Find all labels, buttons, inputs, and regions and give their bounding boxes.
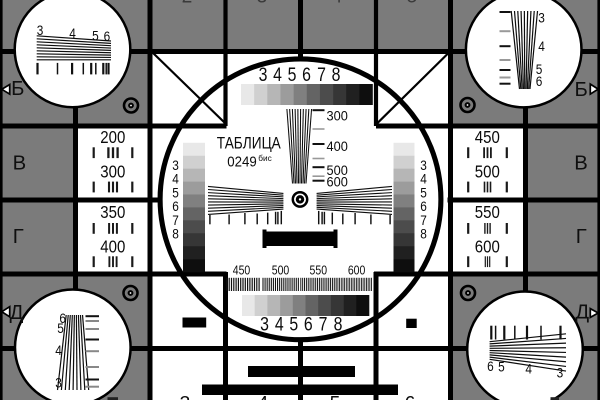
svg-text:7: 7 bbox=[319, 315, 328, 336]
svg-text:4: 4 bbox=[55, 343, 62, 358]
svg-text:400: 400 bbox=[327, 139, 348, 155]
svg-text:8: 8 bbox=[334, 315, 343, 336]
svg-text:3: 3 bbox=[260, 315, 269, 336]
svg-text:4: 4 bbox=[275, 315, 284, 336]
svg-text:500: 500 bbox=[475, 161, 500, 181]
svg-text:5: 5 bbox=[498, 360, 505, 375]
svg-text:5: 5 bbox=[288, 65, 297, 86]
svg-text:Б: Б bbox=[575, 79, 588, 101]
svg-text:4: 4 bbox=[69, 26, 76, 41]
svg-text:450: 450 bbox=[475, 127, 500, 147]
svg-text:4: 4 bbox=[538, 39, 545, 54]
svg-text:3: 3 bbox=[37, 23, 44, 38]
svg-text:350: 350 bbox=[100, 202, 125, 222]
svg-text:5: 5 bbox=[289, 315, 298, 336]
svg-text:600: 600 bbox=[327, 175, 348, 191]
svg-text:3: 3 bbox=[557, 366, 564, 381]
svg-text:7: 7 bbox=[317, 65, 326, 86]
svg-text:6: 6 bbox=[536, 74, 543, 89]
svg-text:3: 3 bbox=[55, 376, 62, 391]
svg-text:4: 4 bbox=[525, 362, 532, 377]
svg-text:Б: Б bbox=[11, 78, 24, 100]
svg-text:5: 5 bbox=[330, 394, 341, 400]
svg-text:4: 4 bbox=[273, 65, 282, 86]
svg-text:3: 3 bbox=[538, 11, 545, 26]
svg-text:В: В bbox=[574, 153, 588, 175]
svg-text:600: 600 bbox=[475, 236, 500, 256]
svg-text:600: 600 bbox=[348, 263, 366, 277]
svg-text:8: 8 bbox=[172, 227, 179, 242]
svg-text:500: 500 bbox=[272, 263, 290, 277]
svg-text:550: 550 bbox=[310, 263, 328, 277]
svg-text:200: 200 bbox=[100, 127, 125, 147]
svg-text:3: 3 bbox=[257, 0, 268, 8]
svg-text:4: 4 bbox=[172, 172, 179, 187]
svg-text:0249: 0249 bbox=[227, 155, 256, 171]
svg-text:4: 4 bbox=[420, 172, 427, 187]
svg-text:300: 300 bbox=[100, 161, 125, 181]
svg-text:бис: бис bbox=[258, 153, 272, 163]
svg-text:6: 6 bbox=[405, 394, 416, 400]
svg-text:2: 2 bbox=[182, 0, 193, 8]
svg-text:8: 8 bbox=[332, 65, 341, 86]
svg-text:400: 400 bbox=[100, 236, 125, 256]
svg-text:3: 3 bbox=[180, 394, 191, 400]
svg-text:5: 5 bbox=[407, 0, 418, 8]
svg-text:Д: Д bbox=[10, 302, 24, 324]
svg-text:ТАБЛИЦА: ТАБЛИЦА bbox=[217, 135, 281, 153]
svg-text:5: 5 bbox=[92, 28, 99, 43]
svg-text:8: 8 bbox=[420, 227, 427, 242]
svg-text:5: 5 bbox=[57, 321, 64, 336]
svg-text:6: 6 bbox=[487, 359, 494, 374]
svg-text:В: В bbox=[13, 153, 27, 175]
svg-text:Г: Г bbox=[13, 226, 24, 248]
svg-text:3: 3 bbox=[259, 65, 268, 86]
svg-text:300: 300 bbox=[327, 109, 348, 125]
svg-text:Г: Г bbox=[576, 226, 587, 248]
svg-text:550: 550 bbox=[475, 202, 500, 222]
svg-text:6: 6 bbox=[304, 315, 313, 336]
svg-text:6: 6 bbox=[302, 65, 311, 86]
svg-text:4: 4 bbox=[258, 394, 269, 400]
svg-text:4: 4 bbox=[332, 0, 343, 8]
svg-text:450: 450 bbox=[233, 263, 251, 277]
svg-text:Д: Д bbox=[575, 302, 589, 324]
svg-text:6: 6 bbox=[104, 29, 111, 44]
